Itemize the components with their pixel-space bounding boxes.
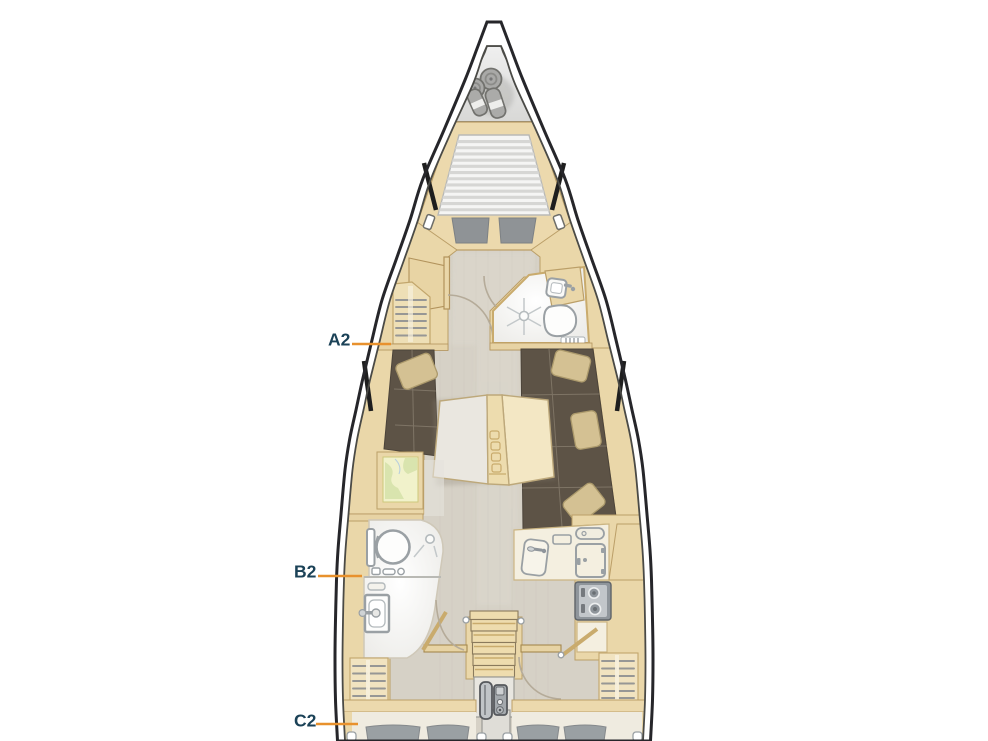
svg-text:A2: A2 bbox=[328, 330, 351, 350]
svg-text:B2: B2 bbox=[294, 562, 317, 582]
svg-text:C2: C2 bbox=[294, 711, 317, 731]
